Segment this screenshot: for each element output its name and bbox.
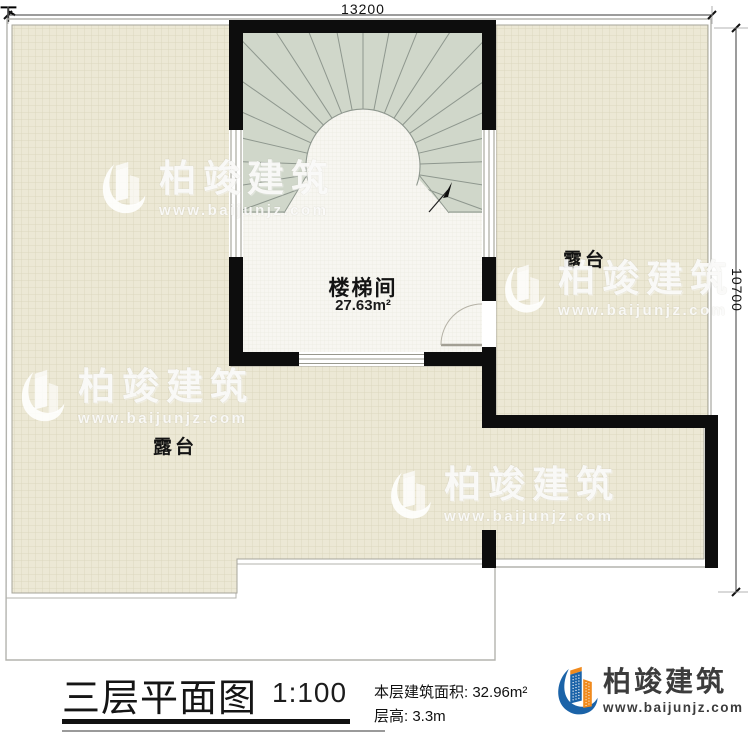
brand-logo: 柏竣建筑 www.baijunjz.com [553,661,744,723]
dimension-top-value: 13200 [303,1,423,17]
brand-building-icon [553,661,599,723]
page-title: 三层平面图 [62,667,257,722]
floor-height-text: 层高: 3.3m [374,705,446,726]
brand-url: www.baijunjz.com [603,700,744,715]
title-underline [62,730,385,732]
terrace-bottom-label: 露台 [85,432,265,459]
floor-plan-page: { "plan": { "dimension_top": "13200", "d… [0,0,750,740]
terrace-right-label: 露台 [480,245,690,272]
dimension-right-value: 10700 [729,259,745,321]
title-underline [62,719,350,724]
stair-room-area: 27.63m² [263,297,463,314]
floor-plan-drawing [0,0,750,740]
floor-area-text: 本层建筑面积: 32.96m² [374,681,527,702]
drawing-scale: 1:100 [272,677,347,709]
brand-name: 柏竣建筑 [603,666,744,698]
